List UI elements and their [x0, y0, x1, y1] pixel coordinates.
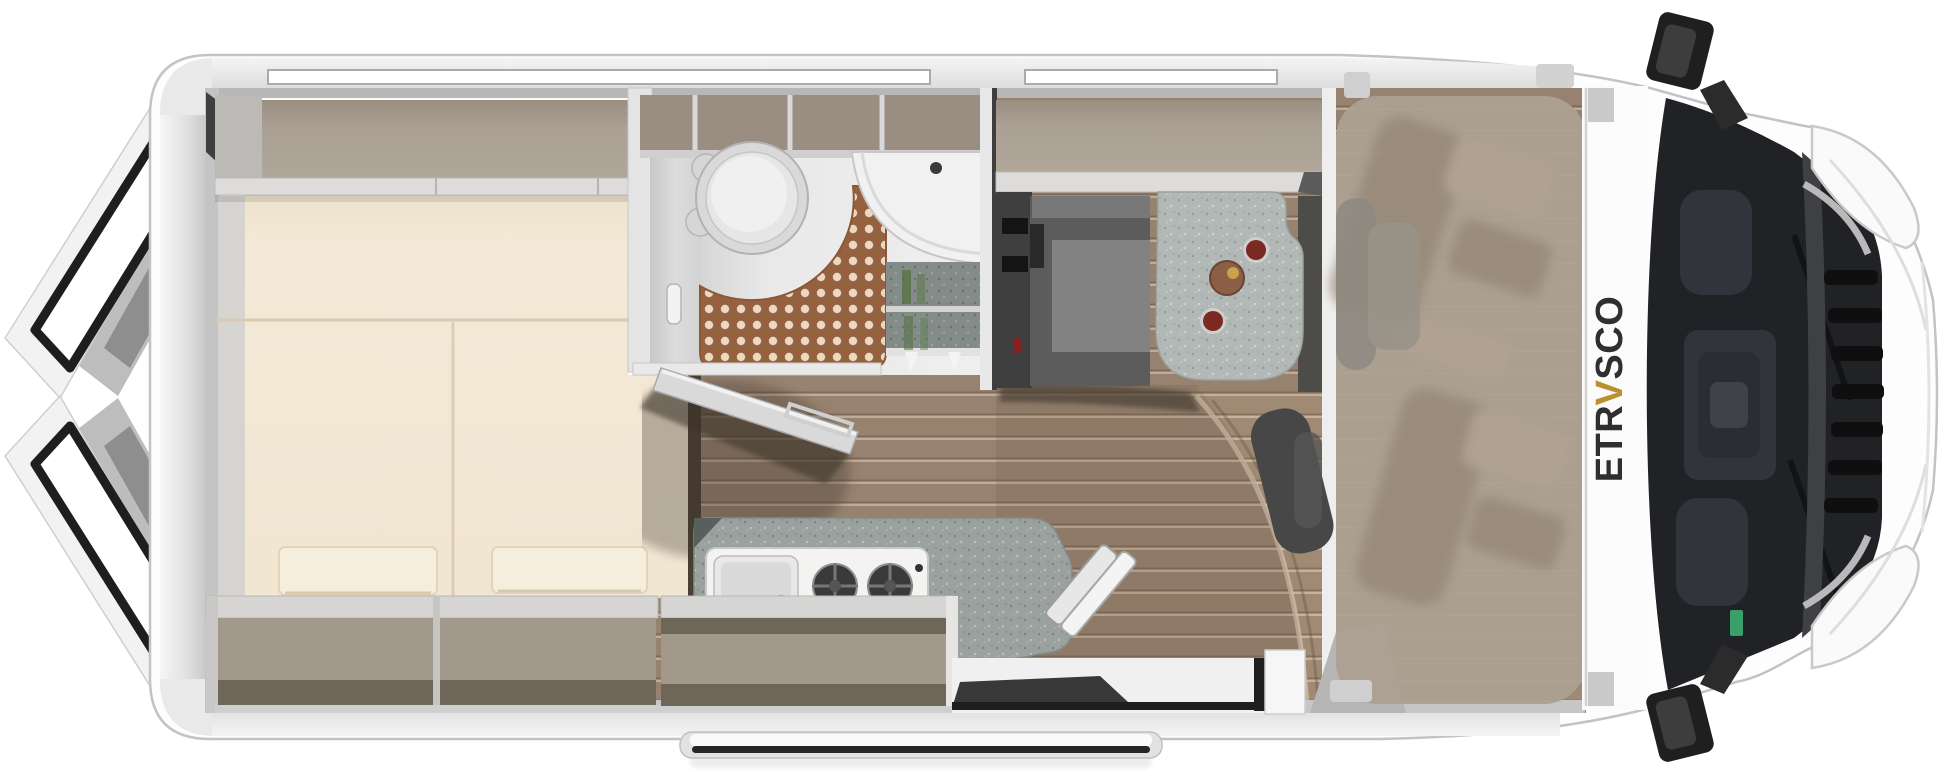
svg-text:ETRVSCO: ETRVSCO: [1589, 296, 1631, 483]
